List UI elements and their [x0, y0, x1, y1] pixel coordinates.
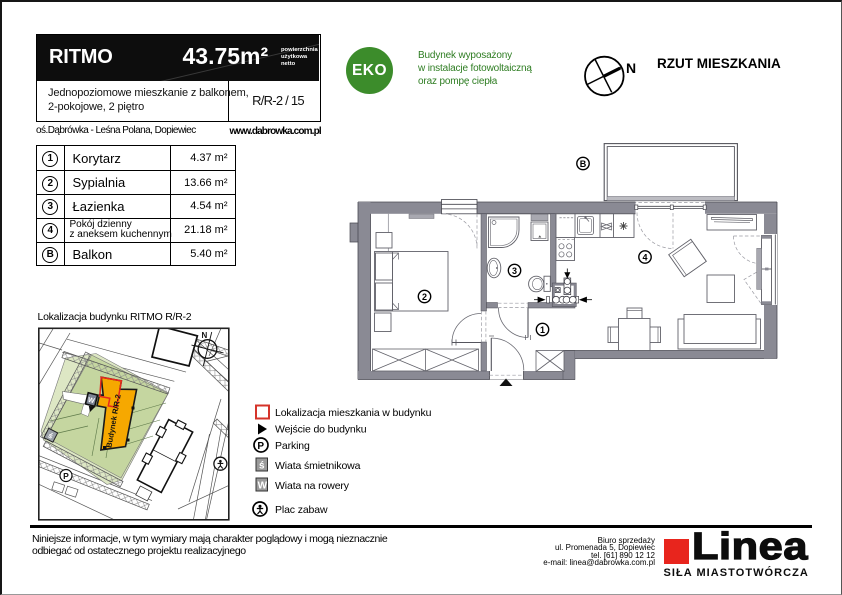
svg-text:2: 2	[422, 292, 427, 302]
svg-text:Wiata śmietnikowa: Wiata śmietnikowa	[275, 460, 361, 472]
svg-text:Parking: Parking	[275, 440, 310, 452]
svg-text:1: 1	[540, 325, 545, 335]
svg-text:P: P	[257, 441, 264, 452]
svg-text:Wiata na rowery: Wiata na rowery	[275, 480, 350, 492]
svg-text:P: P	[63, 471, 69, 481]
svg-text:Plac zabaw: Plac zabaw	[275, 504, 328, 516]
svg-text:W: W	[258, 481, 268, 492]
svg-text:N: N	[202, 331, 208, 340]
svg-text:N: N	[626, 60, 636, 76]
svg-text:3: 3	[512, 266, 517, 276]
svg-text:Lokalizacja mieszkania w budyn: Lokalizacja mieszkania w budynku	[275, 407, 432, 419]
svg-text:Wejście do budynku: Wejście do budynku	[275, 424, 367, 436]
svg-text:ś: ś	[259, 461, 265, 472]
svg-text:4: 4	[642, 253, 647, 263]
svg-text:B: B	[580, 159, 587, 169]
